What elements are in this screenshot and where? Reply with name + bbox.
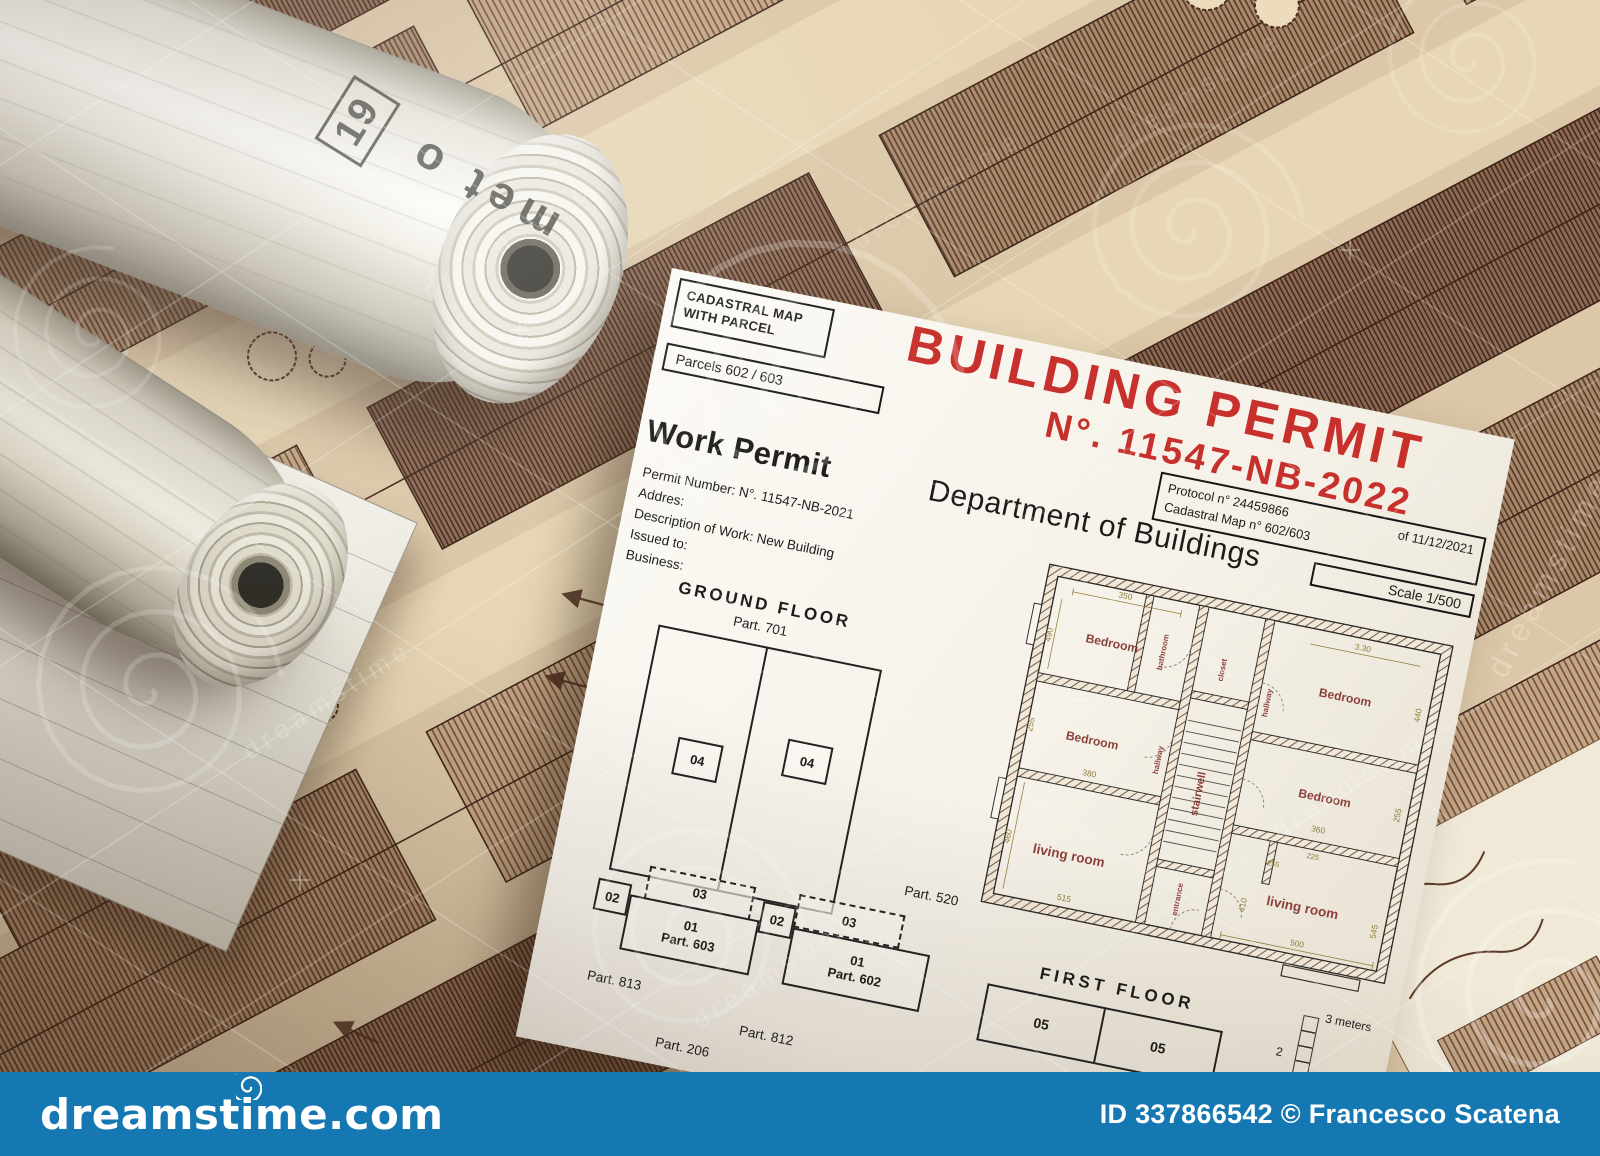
room-entrance: entrance [1170,882,1186,917]
dim-545: 545 [1367,923,1380,939]
parcel-cell-01b: 01 Part. 602 [781,927,930,1012]
room-living-2: living room [1265,893,1340,922]
dim-380: 380 [1081,767,1097,780]
room-bedroom-2: Bedroom [1065,728,1120,752]
dim-440: 440 [1411,707,1424,723]
dim-330: 3.30 [1354,641,1372,654]
room-living-1: living room [1032,841,1107,870]
stock-photo: CADASTRAL MAP WITH PARCEL Parcels 602 / … [0,0,1600,1156]
dim-410: 410 [1236,897,1249,913]
dreamstime-logo: dreamstime.com [40,1090,444,1139]
dim-255b: 255 [1391,807,1404,823]
outer-walls [981,564,1453,983]
dreamstime-spiral-icon [236,1074,262,1100]
room-bedroom-4: Bedroom [1297,786,1352,810]
label-part-520: Part. 520 [903,883,960,909]
room-hallway-2: hallway [1260,687,1275,717]
parcel-divider [717,648,768,889]
label-part-812: Part. 812 [738,1023,795,1049]
room-bathroom: bathroom [1155,633,1171,671]
dim-515: 515 [1056,892,1072,905]
dim-225: 225 [1306,851,1320,862]
footer-bar: dreamstime.com ID 337866542 © Francesco … [0,1072,1600,1156]
label-part-206: Part. 206 [654,1034,711,1060]
room-bedroom-3: Bedroom [1318,685,1373,709]
room-hallway-1: hallway [1151,744,1166,774]
scale-bar-meters: 3 meters [1324,1011,1373,1034]
room-closet: closet [1216,657,1229,682]
label-part-813: Part. 813 [586,967,643,993]
dim-350: 350 [1118,589,1134,602]
image-credit: ID 337866542 © Francesco Scatena [1100,1099,1560,1130]
floor-plan: Bedroom bathroom Bedroom living room hal… [969,548,1465,1000]
scale-bar-2: 2 [1275,1044,1284,1059]
dim-255a: 255 [1024,716,1037,732]
room-bedroom-1: Bedroom [1084,631,1139,655]
bay-windows [991,603,1042,819]
dim-500: 500 [1289,937,1305,950]
first-floor-cell-05a: 05 [979,986,1104,1062]
dim-360: 360 [1310,823,1326,836]
